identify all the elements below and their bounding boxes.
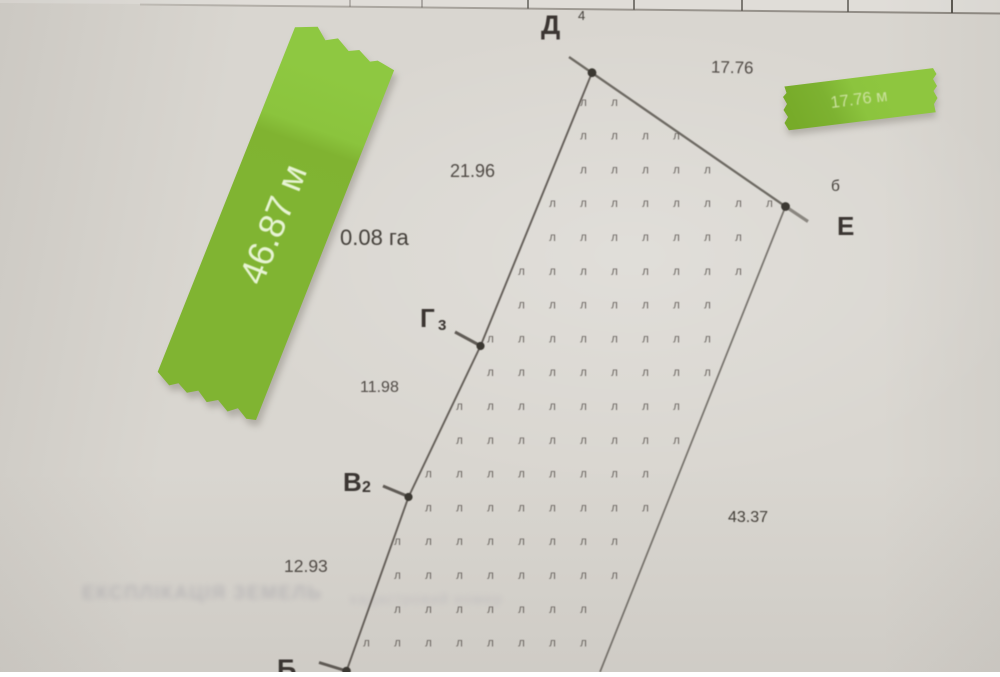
svg-text:л: л — [611, 502, 618, 514]
svg-text:л: л — [580, 401, 587, 413]
svg-text:л: л — [394, 570, 401, 582]
svg-text:л: л — [642, 300, 649, 312]
svg-text:л: л — [580, 164, 587, 176]
svg-text:л: л — [425, 638, 432, 650]
svg-text:л: л — [394, 536, 401, 548]
svg-text:43.37: 43.37 — [728, 509, 768, 526]
svg-text:л: л — [673, 367, 680, 379]
svg-text:л: л — [425, 570, 432, 582]
svg-text:б: б — [831, 178, 840, 195]
svg-text:л: л — [425, 536, 432, 548]
svg-text:л: л — [642, 502, 649, 514]
svg-text:21.96: 21.96 — [450, 161, 495, 181]
svg-text:л: л — [766, 198, 773, 210]
svg-text:л: л — [580, 469, 587, 481]
svg-text:л: л — [611, 266, 618, 278]
svg-text:л: л — [518, 435, 525, 447]
svg-text:л: л — [456, 570, 463, 582]
svg-text:л: л — [642, 401, 649, 413]
svg-text:л: л — [487, 435, 494, 447]
svg-text:л: л — [549, 198, 556, 210]
svg-text:л: л — [735, 198, 742, 210]
svg-text:л: л — [456, 604, 463, 616]
svg-text:л: л — [580, 97, 587, 109]
svg-text:л: л — [580, 131, 587, 143]
svg-text:л: л — [611, 131, 618, 143]
svg-text:11.98: 11.98 — [360, 379, 399, 396]
svg-text:л: л — [580, 570, 587, 582]
svg-text:ЕКСПЛІКАЦІЯ ЗЕМЕЛЬ: ЕКСПЛІКАЦІЯ ЗЕМЕЛЬ — [82, 583, 322, 604]
svg-text:л: л — [518, 401, 525, 413]
svg-text:В: В — [343, 467, 362, 497]
svg-text:л: л — [580, 300, 587, 312]
svg-text:л: л — [456, 502, 463, 514]
svg-text:л: л — [549, 638, 556, 650]
svg-text:л: л — [673, 131, 680, 143]
svg-text:л: л — [642, 131, 649, 143]
svg-text:Е: Е — [837, 211, 854, 241]
svg-text:л: л — [642, 333, 649, 345]
svg-text:л: л — [642, 435, 649, 447]
svg-text:л: л — [549, 469, 556, 481]
svg-text:л: л — [673, 232, 680, 244]
svg-text:л: л — [487, 638, 494, 650]
svg-text:л: л — [611, 367, 618, 379]
svg-text:л: л — [580, 435, 587, 447]
svg-text:л: л — [518, 638, 525, 650]
svg-text:л: л — [580, 502, 587, 514]
svg-text:л: л — [456, 401, 463, 413]
svg-text:л: л — [704, 367, 711, 379]
svg-text:Д: Д — [541, 10, 560, 40]
svg-text:л: л — [735, 266, 742, 278]
svg-text:л: л — [611, 232, 618, 244]
svg-text:л: л — [580, 232, 587, 244]
svg-text:л: л — [549, 604, 556, 616]
svg-text:л: л — [580, 536, 587, 548]
svg-text:2: 2 — [362, 479, 371, 496]
svg-text:л: л — [611, 469, 618, 481]
svg-text:л: л — [642, 198, 649, 210]
svg-text:л: л — [456, 536, 463, 548]
svg-text:л: л — [580, 638, 587, 650]
svg-text:0.08 га: 0.08 га — [340, 225, 409, 250]
svg-text:л: л — [518, 469, 525, 481]
svg-text:л: л — [611, 198, 618, 210]
svg-text:л: л — [518, 266, 525, 278]
svg-text:л: л — [704, 232, 711, 244]
svg-text:л: л — [642, 266, 649, 278]
svg-text:л: л — [487, 333, 494, 345]
svg-text:л: л — [456, 638, 463, 650]
svg-text:3: 3 — [438, 317, 446, 334]
svg-text:л: л — [611, 164, 618, 176]
svg-text:л: л — [518, 604, 525, 616]
svg-text:л: л — [456, 435, 463, 447]
svg-text:л: л — [425, 502, 432, 514]
svg-text:л: л — [673, 266, 680, 278]
svg-text:17.76: 17.76 — [711, 57, 754, 77]
svg-text:л: л — [704, 198, 711, 210]
svg-text:л: л — [549, 570, 556, 582]
svg-text:л: л — [673, 333, 680, 345]
svg-text:л: л — [518, 300, 525, 312]
svg-text:л: л — [456, 469, 463, 481]
svg-text:л: л — [673, 300, 680, 312]
svg-text:л: л — [673, 164, 680, 176]
svg-text:л: л — [549, 435, 556, 447]
svg-text:л: л — [611, 401, 618, 413]
svg-text:л: л — [673, 435, 680, 447]
svg-text:л: л — [611, 536, 618, 548]
svg-text:л: л — [549, 536, 556, 548]
svg-text:л: л — [580, 198, 587, 210]
svg-text:4: 4 — [578, 8, 585, 23]
svg-text:л: л — [394, 604, 401, 616]
svg-text:л: л — [611, 435, 618, 447]
svg-text:л: л — [363, 638, 370, 650]
svg-text:л: л — [735, 232, 742, 244]
svg-text:л: л — [642, 164, 649, 176]
svg-text:12.93: 12.93 — [284, 556, 328, 576]
svg-text:л: л — [394, 638, 401, 650]
svg-text:Б: Б — [277, 654, 296, 672]
svg-text:л: л — [487, 367, 494, 379]
svg-text:л: л — [487, 469, 494, 481]
svg-text:л: л — [704, 333, 711, 345]
svg-text:л: л — [518, 570, 525, 582]
svg-text:л: л — [425, 604, 432, 616]
svg-text:л: л — [518, 502, 525, 514]
svg-text:л: л — [642, 469, 649, 481]
svg-text:л: л — [580, 367, 587, 379]
svg-text:л: л — [487, 502, 494, 514]
svg-text:л: л — [549, 333, 556, 345]
svg-text:л: л — [487, 604, 494, 616]
svg-text:л: л — [549, 401, 556, 413]
svg-text:л: л — [611, 570, 618, 582]
svg-text:л: л — [704, 164, 711, 176]
svg-text:Г: Г — [420, 303, 435, 333]
svg-text:л: л — [611, 300, 618, 312]
svg-text:л: л — [673, 401, 680, 413]
svg-text:л: л — [704, 266, 711, 278]
svg-text:л: л — [518, 536, 525, 548]
svg-text:л: л — [611, 97, 618, 109]
svg-text:л: л — [642, 232, 649, 244]
svg-text:л: л — [549, 266, 556, 278]
svg-text:л: л — [487, 401, 494, 413]
svg-text:л: л — [642, 367, 649, 379]
svg-text:л: л — [580, 333, 587, 345]
svg-text:л: л — [611, 333, 618, 345]
svg-text:л: л — [549, 232, 556, 244]
svg-text:л: л — [487, 570, 494, 582]
svg-text:л: л — [518, 333, 525, 345]
svg-text:л: л — [425, 469, 432, 481]
svg-text:л: л — [518, 367, 525, 379]
svg-text:л: л — [487, 536, 494, 548]
svg-text:л: л — [549, 502, 556, 514]
svg-text:л: л — [673, 198, 680, 210]
svg-text:л: л — [704, 300, 711, 312]
svg-text:л: л — [549, 300, 556, 312]
svg-text:л: л — [580, 604, 587, 616]
svg-text:л: л — [549, 367, 556, 379]
svg-text:л: л — [580, 266, 587, 278]
